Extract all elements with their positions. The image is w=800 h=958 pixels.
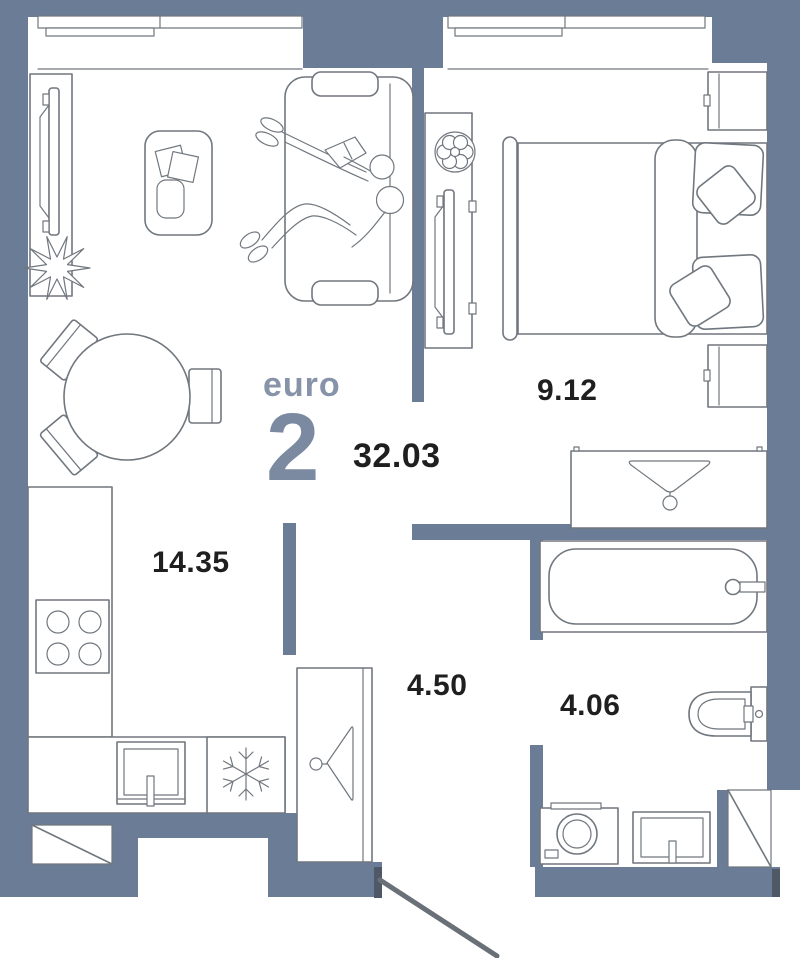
wall-bottom-bath	[535, 867, 780, 897]
window-living-room	[38, 16, 302, 69]
washing-machine-icon	[540, 803, 618, 864]
area-label-bathroom: 4.06	[560, 691, 620, 721]
wall-right	[767, 63, 800, 790]
vent-shaft-right	[728, 790, 771, 867]
toilet-icon	[689, 687, 767, 741]
bed	[503, 137, 767, 340]
kitchen-sink-icon	[117, 742, 185, 806]
dining-chair	[189, 369, 221, 423]
wall-vent-strip	[717, 790, 728, 867]
wall-hall-living	[283, 523, 296, 655]
stove-icon	[36, 600, 109, 673]
wall-center-pillar	[303, 0, 443, 68]
wreath-decor-icon	[435, 132, 475, 172]
area-label-bedroom: 9.12	[537, 376, 597, 406]
door-leaf	[380, 880, 497, 956]
nightstand-bottom	[704, 345, 767, 407]
wall-corner-right	[712, 0, 800, 63]
area-label-hallway: 4.50	[407, 671, 467, 701]
unit-rooms-number: 2	[266, 400, 319, 496]
area-label-living-room: 14.35	[152, 548, 230, 578]
bathroom-sink-icon	[633, 812, 710, 863]
nightstand-top	[704, 72, 767, 130]
apartment-floor-plan: euro 2 32.03 14.35 9.12 4.50 4.06	[0, 0, 800, 958]
wall-recess	[138, 838, 268, 897]
fridge-snowflake-icon	[207, 737, 285, 813]
total-area-label: 32.03	[353, 439, 441, 473]
door-frame	[772, 869, 780, 897]
wall-bottom-mid	[297, 862, 382, 897]
bathtub-icon	[540, 541, 767, 632]
wall-left	[0, 14, 28, 897]
dining-table	[64, 334, 190, 460]
floor-plan-canvas	[0, 0, 800, 958]
coffee-table	[145, 131, 212, 235]
vent-shaft-left	[32, 825, 112, 864]
window-bedroom	[448, 16, 708, 69]
